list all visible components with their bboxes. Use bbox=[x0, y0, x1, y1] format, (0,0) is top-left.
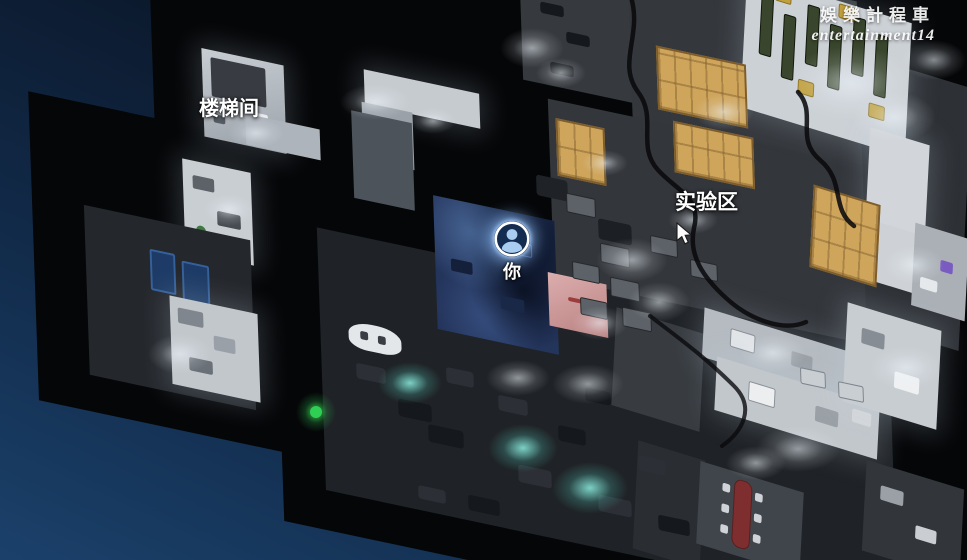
mouse-cursor-icon bbox=[675, 222, 695, 251]
watermark: 娛樂計程車 entertainment14 bbox=[812, 5, 935, 46]
person-circle-icon bbox=[494, 221, 530, 257]
player-marker[interactable] bbox=[494, 221, 530, 257]
route-path bbox=[629, 0, 806, 326]
route-path-overlay bbox=[0, 0, 967, 560]
route-path bbox=[650, 316, 745, 446]
watermark-line1: 娛樂計程車 bbox=[812, 5, 935, 26]
map-viewport[interactable]: 楼梯间 实验区 你 娛樂計程車 entertainment14 bbox=[0, 0, 967, 560]
label-lab-area: 实验区 bbox=[675, 186, 738, 216]
watermark-line2: entertainment14 bbox=[812, 26, 935, 46]
label-player: 你 bbox=[498, 258, 526, 284]
label-stairwell: 楼梯间 bbox=[199, 92, 259, 121]
route-path bbox=[798, 92, 854, 226]
